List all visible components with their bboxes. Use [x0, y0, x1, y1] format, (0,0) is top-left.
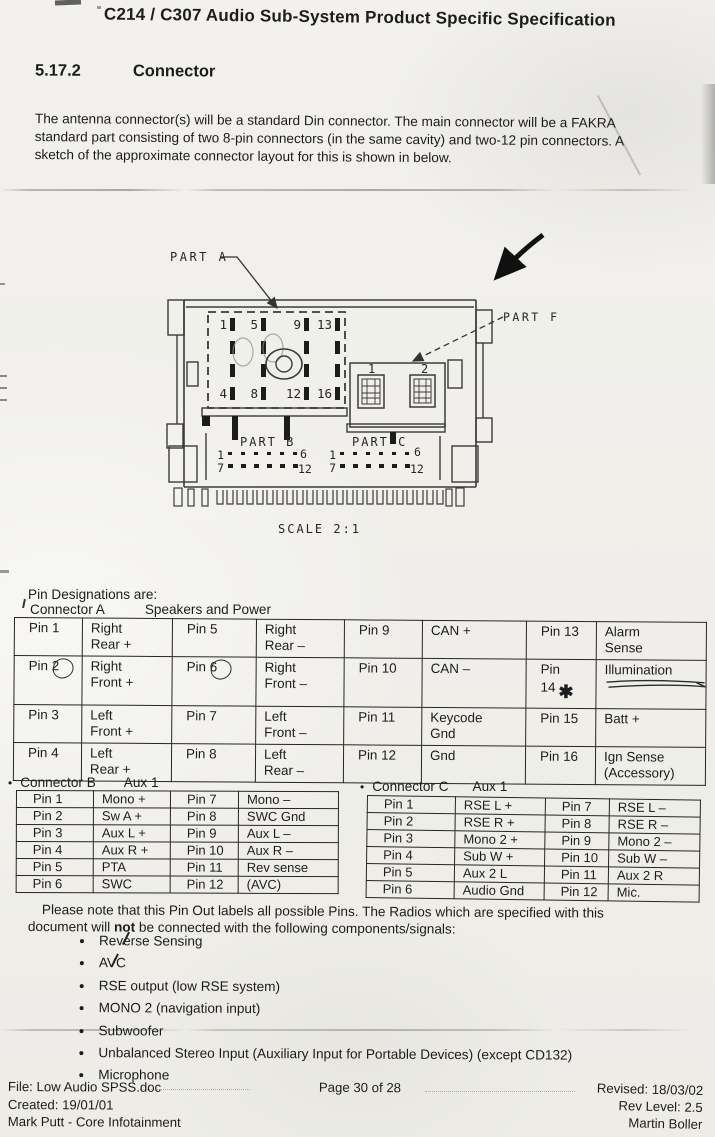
list-item-label: Reverse Sensing: [99, 933, 203, 949]
pin-cell: Pin 1: [14, 618, 82, 656]
pin-cell: Pin 12: [343, 745, 421, 784]
pin-designations-heading: Pin Designations are:: [28, 587, 157, 602]
pin-cell: Pin 10: [344, 658, 422, 708]
pin-cell: Pin 14✱: [526, 659, 596, 708]
pin-cell: Pin 5: [172, 619, 256, 658]
pin-cell: Pin 3: [14, 705, 82, 743]
part-c-label: PART C: [352, 435, 407, 449]
pin-cell: Pin 10: [545, 849, 609, 867]
footer-author: Mark Putt - Core Infotainment: [8, 1113, 181, 1131]
document-title: C214 / C307 Audio Sub-System Product Spe…: [68, 4, 652, 31]
pin-cell: Pin 4: [367, 847, 455, 865]
signal-cell: Aux R –: [238, 842, 338, 859]
section-title: Connector: [133, 62, 216, 80]
connector-a-caption: Connector ASpeakers and Power: [30, 602, 271, 617]
signal-cell: RSE R –: [609, 816, 700, 834]
signal-cell: Aux 2 R: [608, 867, 699, 885]
part-b-label: PART B: [240, 435, 295, 449]
table-row: Pin 2Sw A +Pin 8SWC Gnd: [16, 808, 338, 826]
pin-cell: Pin 2: [14, 656, 82, 705]
svg-text:1: 1: [217, 448, 224, 462]
signal-cell: Aux L +: [93, 825, 170, 842]
connector-c-caption: •Connector CAux 1: [360, 779, 507, 794]
signal-cell: Aux L –: [238, 825, 338, 842]
part-a-pin-numbers: 1 5 9 13 4 8 12 16: [219, 317, 332, 401]
pin-cell: Pin 5: [16, 859, 93, 876]
table-row: Pin 1 Right Rear + Pin 5 Right Rear – Pi…: [14, 618, 706, 661]
pin-cell: Pin 8: [170, 808, 238, 825]
pin-cell: Pin 6: [16, 876, 93, 893]
pin-cell: Pin 2: [16, 808, 93, 825]
part-c-pin-dots: [340, 452, 410, 468]
svg-text:12: 12: [410, 462, 424, 476]
table-row: Pin 6Audio GndPin 12Mic.: [366, 880, 699, 902]
connector-c-subtitle: Aux 1: [473, 779, 508, 794]
signal-cell: Mono +: [93, 791, 170, 808]
footer-revision-info: Revised: 18/03/02 Rev Level: 2.5 Martin …: [596, 1081, 703, 1134]
connector-a-table: Pin 1 Right Rear + Pin 5 Right Rear – Pi…: [13, 617, 707, 786]
pin-cell: Pin 7: [545, 798, 609, 816]
list-item: MONO 2 (navigation input): [95, 1001, 715, 1018]
list-item-label: AVC: [99, 956, 126, 971]
section-number: 5.17.2: [35, 62, 81, 80]
svg-text:9: 9: [293, 317, 301, 332]
signal-cell: Right Front +: [82, 656, 172, 706]
table-row: Pin 4Aux R +Pin 10Aux R –: [16, 842, 338, 860]
pin-cell: Pin 16: [525, 746, 595, 784]
signal-cell: Keycode Gnd: [422, 707, 526, 746]
table-row: Pin 5PTAPin 11Rev sense: [16, 859, 338, 877]
footnote-asterisk-mark: ✱: [558, 682, 573, 702]
pin-cell: Pin 3: [367, 830, 455, 848]
signal-cell: RSE L –: [609, 799, 700, 817]
signal-cell: Audio Gnd: [454, 882, 544, 900]
signal-cell: Mono 2 –: [609, 833, 700, 851]
signal-cell: Alarm Sense: [596, 622, 706, 661]
faint-pen-oval: [233, 338, 253, 366]
signal-cell: Left Front –: [256, 706, 344, 745]
pin-cell: Pin 11: [344, 707, 422, 746]
pin-cell: Pin 11: [170, 859, 238, 876]
pin-cell: Pin 4: [16, 842, 93, 859]
svg-text:1: 1: [329, 448, 336, 462]
svg-text:7: 7: [217, 461, 224, 475]
signal-cell: Mono –: [238, 791, 338, 808]
hand-drawn-circle: [51, 657, 74, 680]
scan-edge-dash: [0, 570, 9, 573]
signal-cell: Sub W –: [609, 850, 700, 868]
bottom-terminal-teeth: [174, 488, 464, 506]
scan-streak-line: [0, 189, 715, 191]
pin-cell: Pin 1: [16, 791, 93, 808]
pin-cell: Pin 9: [545, 832, 609, 850]
part-f-label: PART F: [503, 310, 560, 324]
signal-cell: Batt +: [596, 709, 706, 748]
signal-cell: SWC: [93, 876, 170, 893]
pin-cell: Pin 12: [544, 883, 608, 901]
svg-text:13: 13: [317, 317, 332, 332]
connector-b-subtitle: Aux 1: [124, 775, 159, 790]
excluded-signals-list: Reverse Sensing AVC RSE output (low RSE …: [64, 934, 715, 1094]
svg-text:7: 7: [329, 461, 336, 475]
hand-drawn-arrow: [497, 235, 543, 277]
signal-cell: Mic.: [608, 884, 699, 902]
connector-layout-diagram: 1 5 9 13 4 8 12 16 1 2: [140, 228, 570, 540]
table-row: Pin 3 Left Front + Pin 7 Left Front – Pi…: [14, 705, 706, 748]
bullet-mark: •: [360, 780, 364, 794]
signal-cell: Sw A +: [93, 808, 170, 825]
scan-edge-dash: [0, 375, 7, 377]
pin-cell: Pin 7: [170, 791, 238, 808]
signal-cell: Right Front –: [256, 657, 344, 707]
table-row: Pin 1Mono +Pin 7Mono –: [16, 791, 338, 809]
svg-text:16: 16: [317, 386, 332, 401]
connector-c-title: Connector C: [372, 779, 448, 794]
table-row: Pin 3Aux L +Pin 9Aux L –: [16, 825, 338, 843]
signal-cell: Aux R +: [93, 842, 170, 859]
pin-cell: Pin 12: [170, 876, 238, 893]
scan-edge-dash: [0, 387, 7, 389]
hand-drawn-underline: [605, 679, 709, 691]
signal-cell: SWC Gnd: [238, 808, 338, 825]
footer-file-info: File: Low Audio SPSS.doc Created: 19/01/…: [8, 1078, 181, 1132]
signal-cell: Sub W +: [455, 848, 545, 866]
part-f-leader-line: [413, 317, 503, 361]
intro-paragraph: The antenna connector(s) will be a stand…: [35, 110, 695, 169]
signal-cell: Illumination: [596, 660, 706, 710]
list-item: Subwoofer: [94, 1024, 714, 1041]
connector-b-caption: •Connector BAux 1: [8, 775, 159, 790]
scan-edge-dash: [0, 399, 7, 401]
footer-reviser: Martin Boller: [596, 1114, 703, 1133]
signal-cell: RSE R +: [455, 814, 545, 832]
list-item: AVC: [95, 957, 715, 974]
signal-cell: (AVC): [238, 876, 338, 893]
pin-cell: Pin 3: [16, 825, 93, 842]
signal-label: Illumination: [605, 662, 673, 677]
footer-page-number: Page 30 of 28: [260, 1079, 460, 1095]
signal-cell: Left Front +: [82, 705, 172, 744]
footer-file: File: Low Audio SPSS.doc: [8, 1078, 181, 1096]
list-item: Unbalanced Stereo Input (Auxiliary Input…: [94, 1046, 714, 1063]
part-f-cavity: [350, 363, 445, 427]
svg-text:1: 1: [219, 317, 227, 332]
stray-pen-tick: [22, 599, 26, 608]
pin-cell: Pin 1: [367, 796, 455, 814]
svg-text:4: 4: [219, 386, 227, 401]
section-heading: 5.17.2Connector: [35, 62, 215, 82]
note-bold-word: not: [114, 919, 135, 934]
pin-cell: Pin 5: [366, 864, 454, 882]
scan-edge-dash: [0, 283, 5, 285]
part-b-pin-dots: [228, 452, 298, 468]
part-bc-row-numbers: 1 6 7 12 1 6 7 12: [217, 445, 424, 476]
pin-label: Pin 14: [540, 662, 560, 695]
mounting-hole: [266, 349, 302, 379]
hand-drawn-circle: [209, 658, 232, 681]
list-item: RSE output (low RSE system): [95, 979, 715, 996]
signal-cell: Aux 2 L: [454, 865, 544, 883]
svg-text:12: 12: [298, 462, 312, 476]
signal-cell: Ign Sense (Accessory): [595, 747, 705, 786]
svg-text:12: 12: [286, 386, 301, 401]
note-text: document will: [28, 919, 114, 935]
connector-a-title: Connector A: [30, 602, 105, 617]
pin-cell: Pin 6: [172, 657, 256, 707]
signal-cell: CAN +: [422, 620, 526, 659]
pin-cell: Pin 9: [170, 825, 238, 842]
pin-cell: Pin 8: [171, 744, 255, 783]
pin-cell: Pin 6: [366, 880, 454, 898]
table-row: Pin 6SWCPin 12(AVC): [16, 876, 338, 894]
scale-label: SCALE 2:1: [278, 522, 361, 536]
connector-b-title: Connector B: [20, 775, 96, 790]
signal-cell: RSE L +: [455, 797, 545, 815]
signal-cell: CAN –: [422, 658, 526, 708]
part-a-label: PART A: [170, 250, 228, 264]
footer-created: Created: 19/01/01: [8, 1096, 181, 1114]
pin-cell: Pin 10: [170, 842, 238, 859]
svg-text:6: 6: [414, 445, 421, 459]
scan-edge-smudge: [701, 84, 715, 184]
connector-a-subtitle: Speakers and Power: [145, 602, 271, 617]
footer-revised: Revised: 18/03/02: [596, 1081, 703, 1100]
pin-cell: Pin 2: [367, 813, 455, 831]
signal-cell: Rev sense: [238, 859, 338, 876]
signal-cell: Right Rear +: [82, 618, 172, 657]
list-item: Reverse Sensing: [95, 934, 715, 951]
scanned-document-page: C214 / C307 Audio Sub-System Product Spe…: [0, 0, 715, 1137]
pin-cell: Pin 15: [526, 708, 596, 746]
connector-b-table: Pin 1Mono +Pin 7Mono –Pin 2Sw A +Pin 8SW…: [16, 790, 339, 894]
pin-cell: Pin 13: [526, 621, 596, 659]
signal-cell: Left Rear –: [255, 744, 343, 783]
pin-cell: Pin 9: [344, 620, 422, 659]
internal-walls: [202, 408, 445, 444]
pin-cell: Pin 7: [172, 706, 256, 745]
svg-text:8: 8: [250, 386, 258, 401]
signal-cell: Right Rear –: [256, 619, 344, 658]
table-row: Pin 2 Right Front + Pin 6 Right Front – …: [14, 656, 706, 710]
svg-text:5: 5: [250, 317, 258, 332]
signal-cell: Mono 2 +: [455, 831, 545, 849]
svg-text:2: 2: [421, 362, 428, 376]
part-f-pin-numbers: 1 2: [368, 362, 428, 376]
pin-cell: Pin 8: [545, 815, 609, 833]
connector-c-table: Pin 1RSE L +Pin 7RSE L –Pin 2RSE R +Pin …: [366, 795, 701, 903]
bullet-mark: •: [8, 776, 12, 790]
svg-text:1: 1: [368, 362, 375, 376]
signal-cell: PTA: [93, 859, 170, 876]
svg-text:6: 6: [300, 447, 307, 461]
pin-cell: Pin 11: [544, 866, 608, 884]
